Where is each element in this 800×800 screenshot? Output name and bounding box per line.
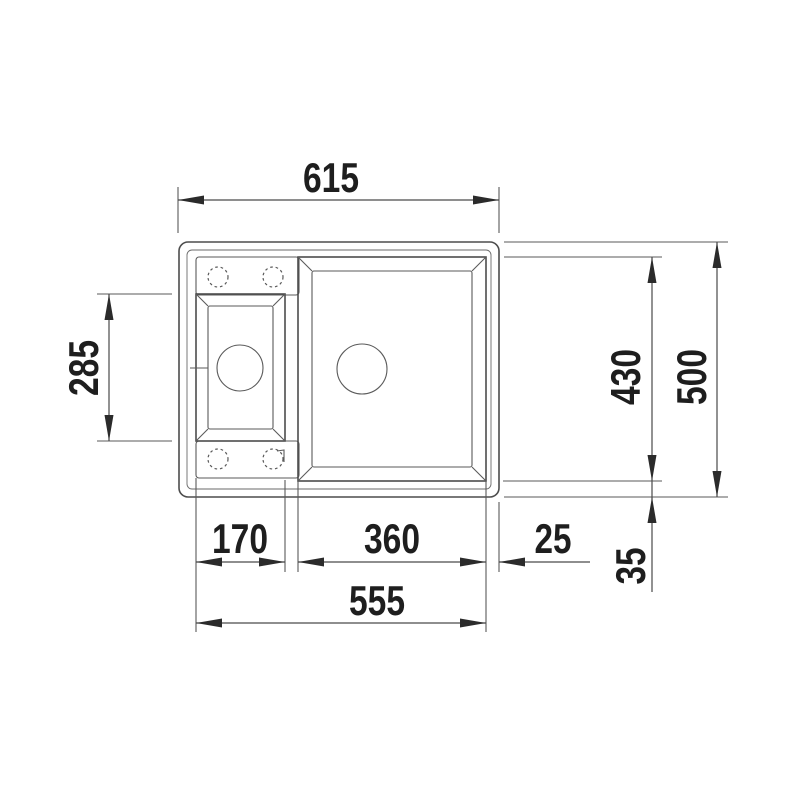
small-bowl-bevel-tr <box>273 294 285 306</box>
main-bowl-bevel-bl <box>298 467 312 481</box>
small-bowl-bevel-tl <box>196 294 208 306</box>
dim-label-small-bowl-height: 285 <box>60 340 107 396</box>
sink-inner-rim <box>187 250 491 489</box>
arrow-down-icon <box>105 415 114 441</box>
arrow-right-icon <box>460 619 486 628</box>
arrow-down-icon <box>713 471 722 497</box>
small-bowl-bevel-br <box>273 429 285 441</box>
arrow-up-icon <box>648 497 657 523</box>
main-bowl-inner <box>312 271 472 467</box>
tap-hole-bottom-right <box>263 449 283 469</box>
tap-ledge-bottom <box>196 441 299 478</box>
tap-hole-top-right <box>263 267 283 287</box>
sink-technical-drawing: 615 285 430 500 35 <box>0 0 800 800</box>
dimension-small-bowl-width: 170 <box>196 515 285 567</box>
arrow-left-icon <box>196 619 222 628</box>
sink-outer-edge <box>179 242 499 497</box>
small-bowl-drain <box>217 345 263 391</box>
dim-label-small-bowl-width: 170 <box>212 515 268 562</box>
sink-body <box>179 242 499 497</box>
drawing-canvas: 615 285 430 500 35 <box>0 0 800 800</box>
dim-label-overall-width: 615 <box>303 154 359 201</box>
main-bowl <box>298 257 486 481</box>
arrow-up-icon <box>105 294 114 320</box>
dim-label-right-inset: 25 <box>535 515 572 562</box>
arrow-right-icon <box>460 558 486 567</box>
tap-hole-bottom-left <box>208 449 228 469</box>
main-bowl-outer <box>298 257 486 481</box>
dim-label-bowl-height: 430 <box>602 349 649 405</box>
dim-label-main-bowl-width: 360 <box>364 515 420 562</box>
main-bowl-bevel-br <box>472 467 486 481</box>
dimension-main-bowl-width: 360 <box>298 515 486 567</box>
dim-label-bottom-inset: 35 <box>607 548 654 585</box>
arrow-left-icon <box>298 558 324 567</box>
tap-hole-top-left <box>208 267 228 287</box>
main-bowl-drain <box>337 344 387 394</box>
arrow-left-icon <box>178 196 204 205</box>
dimension-bottom-inset: 35 <box>607 481 657 592</box>
arrow-up-icon <box>648 257 657 283</box>
arrow-right-icon <box>473 196 499 205</box>
arrow-down-icon <box>648 455 657 481</box>
dimension-bowl-height: 430 <box>503 257 662 481</box>
dimension-overall-width: 615 <box>178 154 499 233</box>
main-bowl-bevel-tl <box>298 257 312 271</box>
main-bowl-bevel-tr <box>472 257 486 271</box>
small-bowl-bevel-bl <box>196 429 208 441</box>
tap-ledge-top <box>196 257 299 295</box>
small-bowl-outer <box>196 294 285 441</box>
dim-label-bowls-span: 555 <box>349 577 405 624</box>
dimension-right-inset: 25 <box>499 515 590 567</box>
arrow-up-icon <box>713 242 722 268</box>
dim-label-overall-depth: 500 <box>668 349 715 405</box>
dimension-bowls-span: 555 <box>196 577 486 628</box>
small-bowl <box>190 294 285 441</box>
dimension-small-bowl-height: 285 <box>60 294 172 441</box>
arrow-left-icon <box>499 558 525 567</box>
